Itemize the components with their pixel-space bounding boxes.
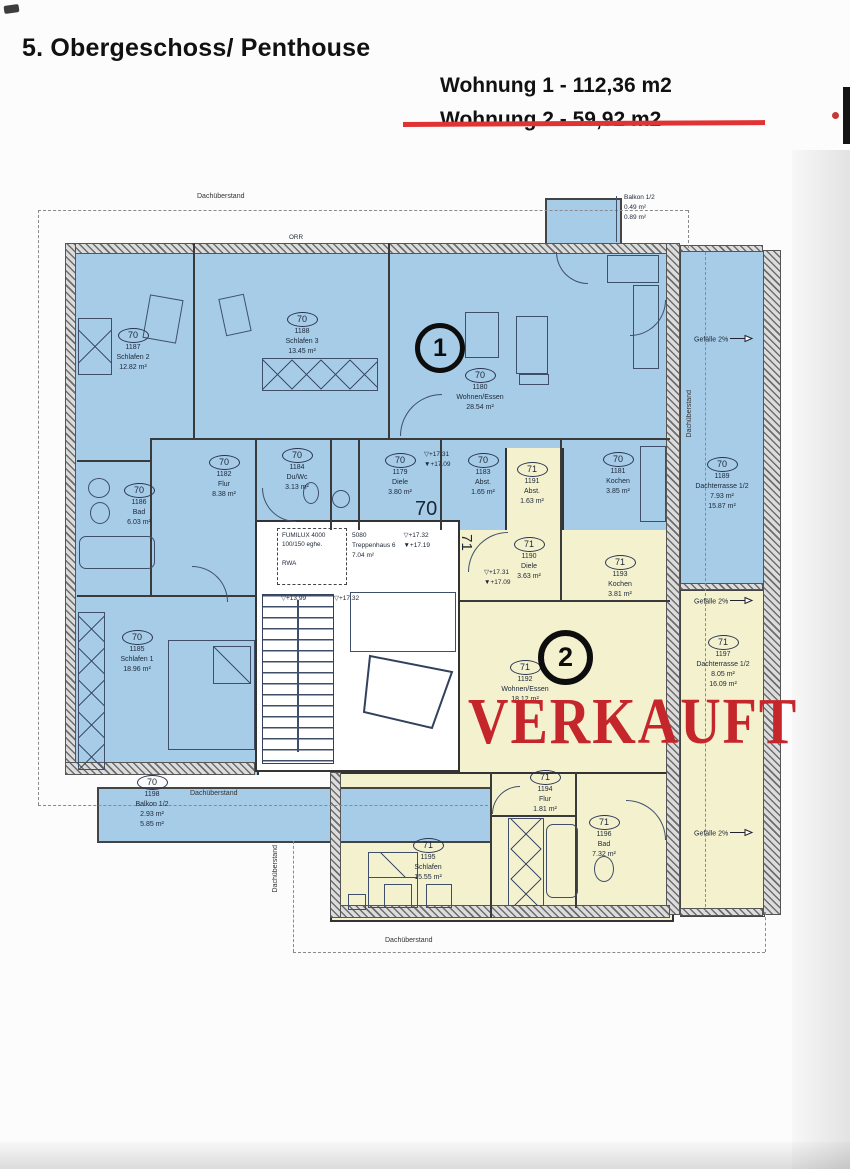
room-id: 1189 xyxy=(677,472,767,482)
unit-badge-wrap: 70 xyxy=(88,328,178,343)
room-label-1191: 711191Abst.1.63 m² xyxy=(487,462,577,507)
room-id: 1193 xyxy=(575,570,665,580)
overhang-line-topright xyxy=(688,210,689,248)
room-label-1198: 701198Balkon 1/22.93 m²5.85 m² xyxy=(107,775,197,831)
overhang-line-balcony xyxy=(38,805,488,806)
overhang-line-top xyxy=(38,210,688,211)
room-area: 8.05 m² xyxy=(678,670,768,680)
room-id: 1197 xyxy=(678,650,768,660)
unit-badge: 70 xyxy=(282,448,313,463)
red-dot-mark xyxy=(832,112,839,119)
room-name: Schlafen 3 xyxy=(257,337,347,347)
apartment2-marker: 2 xyxy=(538,630,593,685)
unit-badge-wrap: 70 xyxy=(94,483,184,498)
wall-hatch-bottomwing-left xyxy=(330,772,341,918)
unit-badge-wrap: 71 xyxy=(575,555,665,570)
vent-line: FUMILUX 4000 xyxy=(282,531,346,540)
unit-badge-wrap: 70 xyxy=(677,457,767,472)
room-label-1197: 711197Dachterrasse 1/28.05 m²16.09 m² xyxy=(678,635,768,691)
overhang-label: Dachüberstand xyxy=(385,937,432,944)
top-balcony-area2: 0.89 m² xyxy=(624,213,655,223)
overhang-line-bottom xyxy=(293,952,765,953)
top-balcony-area xyxy=(545,198,622,246)
stair-direction-line xyxy=(297,600,299,752)
unit-badge: 70 xyxy=(385,453,416,468)
room-area: 7.93 m² xyxy=(677,492,767,502)
room-label-1181: 701181Kochen3.85 m² xyxy=(573,452,663,497)
elevation-line: ▽+17.32 xyxy=(334,594,359,604)
scanned-floor-plan-page: 5. Obergeschoss/ Penthouse Wohnung 1 - 1… xyxy=(0,0,850,1169)
room-name: Dachterrasse 1/2 xyxy=(678,660,768,670)
wall-hatch-terrace-outer xyxy=(763,250,781,915)
room-id: 1185 xyxy=(92,645,182,655)
room-area: 3.81 m² xyxy=(575,590,665,600)
wall-hatch-terrace-bottom xyxy=(680,908,763,916)
unit-badge: 71 xyxy=(413,838,444,853)
elevation-line: ▼+17.09 xyxy=(484,578,511,588)
wall-hatch-terrace-divider xyxy=(680,583,763,590)
apartment1-label: Wohnung 1 - 112,36 m2 xyxy=(440,74,672,98)
slope-text: Gefälle 2% xyxy=(694,598,728,605)
page-title: 5. Obergeschoss/ Penthouse xyxy=(22,34,370,63)
scan-speck xyxy=(4,4,20,14)
stairwell-level-bottom: ▼+17.19 xyxy=(404,541,431,551)
room-name: Abst. xyxy=(487,487,577,497)
wall-hatch-terrace-inner xyxy=(666,243,680,915)
elevation-mark: ▽+17.31▼+17.09 xyxy=(484,568,511,588)
overhang-label: Dachüberstand xyxy=(190,790,237,797)
unit-badge-wrap: 70 xyxy=(573,452,663,467)
unit-badge-wrap: 71 xyxy=(500,770,590,785)
slope-text: Gefälle 2% xyxy=(694,336,728,343)
kitchen-counter xyxy=(607,255,659,283)
wall-note: ORR xyxy=(289,233,303,242)
wall-hatch-left xyxy=(65,243,76,775)
room-id: 1181 xyxy=(573,467,663,477)
slope-label: Gefälle 2% xyxy=(694,334,754,345)
room-label-1189: 701189Dachterrasse 1/27.93 m²15.87 m² xyxy=(677,457,767,513)
elevation-mark: ▽+17.31▼+17.09 xyxy=(424,450,451,470)
top-balcony-label: Balkon 1/2 0.49 m² 0.89 m² xyxy=(624,193,655,222)
room-area: 6.03 m² xyxy=(94,518,184,528)
unit-badge: 70 xyxy=(287,312,318,327)
room-id: 1186 xyxy=(94,498,184,508)
room-name: Wohnen/Essen xyxy=(435,393,525,403)
unit-badge: 71 xyxy=(530,770,561,785)
table xyxy=(465,312,499,358)
top-balcony-area1: 0.49 m² xyxy=(624,203,655,213)
room-id: 1198 xyxy=(107,790,197,800)
room-id: 1194 xyxy=(500,785,590,795)
sofa xyxy=(516,316,548,374)
slope-label: Gefälle 2% xyxy=(694,596,754,607)
room-name: Schlafen xyxy=(383,863,473,873)
unit-badge-wrap: 71 xyxy=(678,635,768,650)
unit-badge-wrap: 71 xyxy=(487,462,577,477)
overhang-line-terrace xyxy=(705,252,706,912)
room-area: 1.81 m² xyxy=(500,805,590,815)
slope-arrow-icon xyxy=(730,832,754,839)
unit-badge: 71 xyxy=(510,660,541,675)
unit-badge: 71 xyxy=(708,635,739,650)
room-label-1188: 701188Schlafen 313.45 m² xyxy=(257,312,347,357)
stairwell-name: Treppenhaus 6 xyxy=(352,541,396,551)
room-id: 1196 xyxy=(559,830,649,840)
unit-badge: 71 xyxy=(514,537,545,552)
zone-number-71: 71 xyxy=(458,534,475,551)
unit-badge-wrap: 70 xyxy=(257,312,347,327)
room-name: Schlafen 1 xyxy=(92,655,182,665)
room-id: 1191 xyxy=(487,477,577,487)
room-label-1185: 701185Schlafen 118.96 m² xyxy=(92,630,182,675)
interior-wall xyxy=(193,243,195,440)
overhang-label: Dachüberstand xyxy=(272,845,279,892)
page-bottom-shade xyxy=(0,1142,850,1169)
nightstand xyxy=(348,894,366,910)
overhang-line-left xyxy=(38,210,39,805)
room-id: 1187 xyxy=(88,343,178,353)
apartment1-marker: 1 xyxy=(415,323,465,373)
unit-badge: 71 xyxy=(605,555,636,570)
room-area: 3.80 m² xyxy=(355,488,445,498)
unit-badge: 70 xyxy=(465,368,496,383)
room-label-1196: 711196Bad7.32 m² xyxy=(559,815,649,860)
room-label-1195: 711195Schlafen15.55 m² xyxy=(383,838,473,883)
interior-wall xyxy=(490,772,492,918)
slope-arrow-icon xyxy=(730,338,754,345)
room-area: 15.55 m² xyxy=(383,873,473,883)
elevation-line: ▽+17.31 xyxy=(484,568,511,578)
unit-badge-wrap: 70 xyxy=(252,448,342,463)
room-label-1186: 701186Bad6.03 m² xyxy=(94,483,184,528)
unit-badge: 71 xyxy=(517,462,548,477)
pillow xyxy=(213,646,251,684)
red-strikethrough xyxy=(403,120,765,127)
room-area: 15.87 m² xyxy=(677,502,767,512)
unit-badge: 70 xyxy=(603,452,634,467)
room-area: 12.82 m² xyxy=(88,363,178,373)
nightstand xyxy=(426,884,452,908)
bathtub xyxy=(79,536,155,569)
room-name: Balkon 1/2 xyxy=(107,800,197,810)
room-label-1193: 711193Kochen3.81 m² xyxy=(575,555,665,600)
unit-badge: 71 xyxy=(589,815,620,830)
overhang-label: Dachüberstand xyxy=(686,390,693,437)
top-balcony-name: Balkon 1/2 xyxy=(624,193,655,203)
unit-badge: 70 xyxy=(124,483,155,498)
smoke-vent-box: FUMILUX 4000 100/150 eghe. RWA xyxy=(277,528,347,585)
sold-stamp: VERKAUFT xyxy=(468,684,798,760)
room-name: Diele xyxy=(355,478,445,488)
unit-badge-wrap: 71 xyxy=(383,838,473,853)
stairwell-area: 7.04 m² xyxy=(352,551,396,561)
room-area: 28.54 m² xyxy=(435,403,525,413)
room-name: Kochen xyxy=(573,477,663,487)
slope-text: Gefälle 2% xyxy=(694,830,728,837)
unit-badge: 70 xyxy=(209,455,240,470)
elevation-mark: ▽+13,99 xyxy=(281,594,306,604)
vent-line: 100/150 eghe. xyxy=(282,540,346,549)
page-edge-shade xyxy=(792,150,850,1169)
unit-badge: 70 xyxy=(707,457,738,472)
unit-badge-wrap: 71 xyxy=(559,815,649,830)
room-label-1184: 701184Du/Wc3.13 m² xyxy=(252,448,342,493)
room-name: Du/Wc xyxy=(252,473,342,483)
room-id: 1184 xyxy=(252,463,342,473)
room-name: Kochen xyxy=(575,580,665,590)
stairwell-level-top: ▽+17.32 xyxy=(404,531,431,541)
interior-wall xyxy=(150,438,670,440)
room-area: 13.45 m² xyxy=(257,347,347,357)
room-area: 18.96 m² xyxy=(92,665,182,675)
room-label-1194: 711194Flur1.81 m² xyxy=(500,770,590,815)
room-area: 3.85 m² xyxy=(573,487,663,497)
room-name: Bad xyxy=(559,840,649,850)
room-id: 1195 xyxy=(383,853,473,863)
unit-badge-wrap: 70 xyxy=(107,775,197,790)
room-name: Flur xyxy=(500,795,590,805)
wardrobe-row xyxy=(262,358,378,391)
room-area: 5.85 m² xyxy=(107,820,197,830)
interior-wall xyxy=(388,243,390,440)
stair-landing-shape xyxy=(362,652,457,734)
room-id: 1179 xyxy=(355,468,445,478)
unit-badge: 70 xyxy=(137,775,168,790)
room-name: Dachterrasse 1/2 xyxy=(677,482,767,492)
elevation-line: ▼+17.09 xyxy=(424,460,451,470)
room-area: 2.93 m² xyxy=(107,810,197,820)
wardrobe-column xyxy=(508,818,544,906)
room-area: 7.32 m² xyxy=(559,850,649,860)
room-area: 1.63 m² xyxy=(487,497,577,507)
elevation-mark: ▽+17.32 xyxy=(334,594,359,604)
unit-badge-wrap: 71 xyxy=(484,537,574,552)
slope-label: Gefälle 2% xyxy=(694,828,754,839)
room-id: 1180 xyxy=(435,383,525,393)
interior-wall xyxy=(77,595,255,597)
overhang-label: Dachüberstand xyxy=(197,193,244,200)
room-area: 3.13 m² xyxy=(252,483,342,493)
dimension-line xyxy=(616,196,617,242)
unit-badge: 70 xyxy=(122,630,153,645)
overhang-line-bottomright xyxy=(765,912,766,952)
room-label-1180: 701180Wohnen/Essen28.54 m² xyxy=(435,368,525,413)
unit-badge: 70 xyxy=(118,328,149,343)
stairwell-id: 5080 xyxy=(352,531,396,541)
room-name: Bad xyxy=(94,508,184,518)
unit-badge-wrap: 70 xyxy=(92,630,182,645)
room-id: 1188 xyxy=(257,327,347,337)
elevation-line: ▽+17.31 xyxy=(424,450,451,460)
scan-edge-black-bar xyxy=(843,87,850,144)
room-id: 1190 xyxy=(484,552,574,562)
nightstand xyxy=(384,884,412,908)
stairwell-label: 5080 Treppenhaus 6 7.04 m² ▽+17.32 ▼+17.… xyxy=(352,531,430,561)
vent-line: RWA xyxy=(282,559,346,568)
room-name: Schlafen 2 xyxy=(88,353,178,363)
slope-arrow-icon xyxy=(730,600,754,607)
wall-hatch-terrace-top xyxy=(680,245,763,252)
zone-number-70: 70 xyxy=(415,498,437,521)
elevation-line: ▽+13,99 xyxy=(281,594,306,604)
elevator-shaft xyxy=(350,592,456,652)
room-label-1187: 701187Schlafen 212.82 m² xyxy=(88,328,178,373)
interior-wall xyxy=(77,460,150,462)
overhang-line-bottomleft xyxy=(293,841,294,952)
